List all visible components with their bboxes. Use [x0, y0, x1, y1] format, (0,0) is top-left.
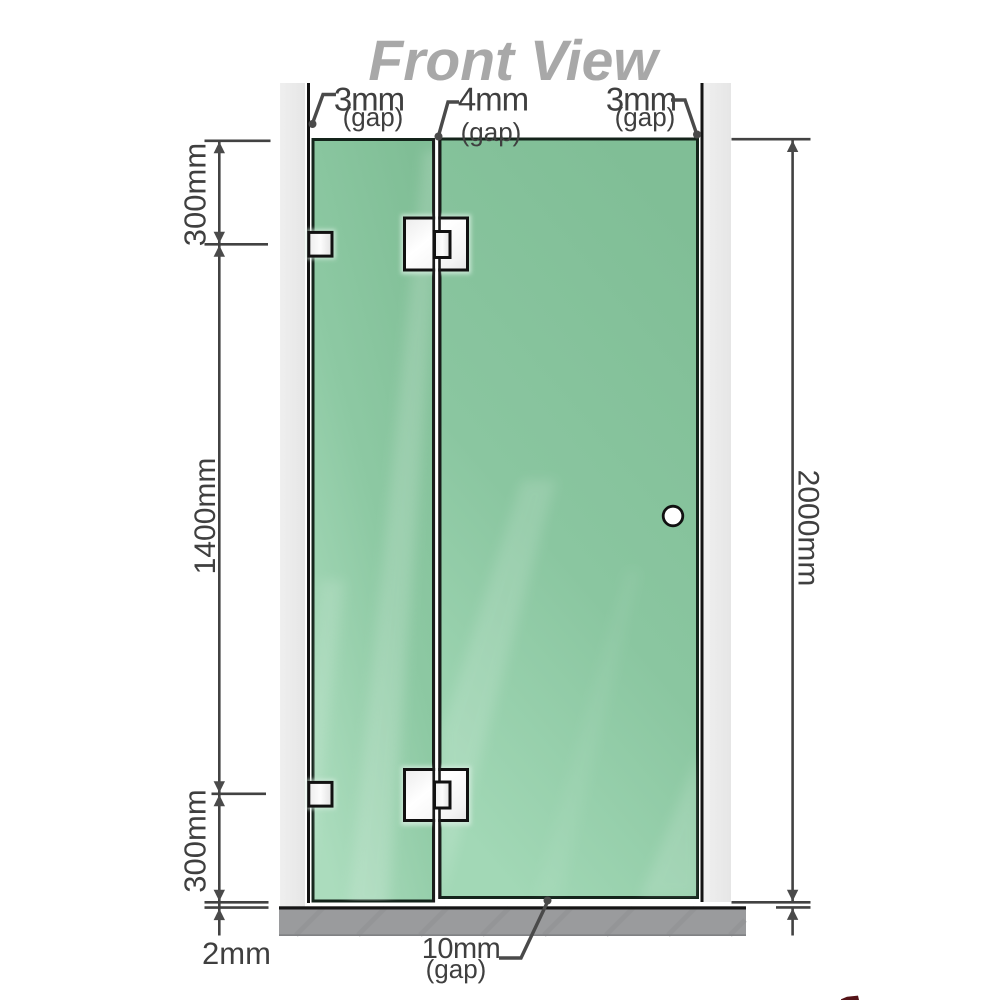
svg-text:300mm: 300mm — [178, 789, 213, 892]
svg-text:1400mm: 1400mm — [189, 458, 222, 575]
svg-text:2000mm: 2000mm — [792, 470, 825, 587]
svg-text:2mm: 2mm — [202, 936, 271, 971]
svg-text:4mm: 4mm — [458, 80, 528, 117]
svg-text:300mm: 300mm — [178, 143, 213, 246]
svg-text:(gap): (gap) — [426, 954, 487, 984]
svg-text:(gap): (gap) — [461, 117, 522, 147]
svg-text:(gap): (gap) — [343, 102, 404, 132]
svg-text:(gap): (gap) — [615, 102, 676, 132]
